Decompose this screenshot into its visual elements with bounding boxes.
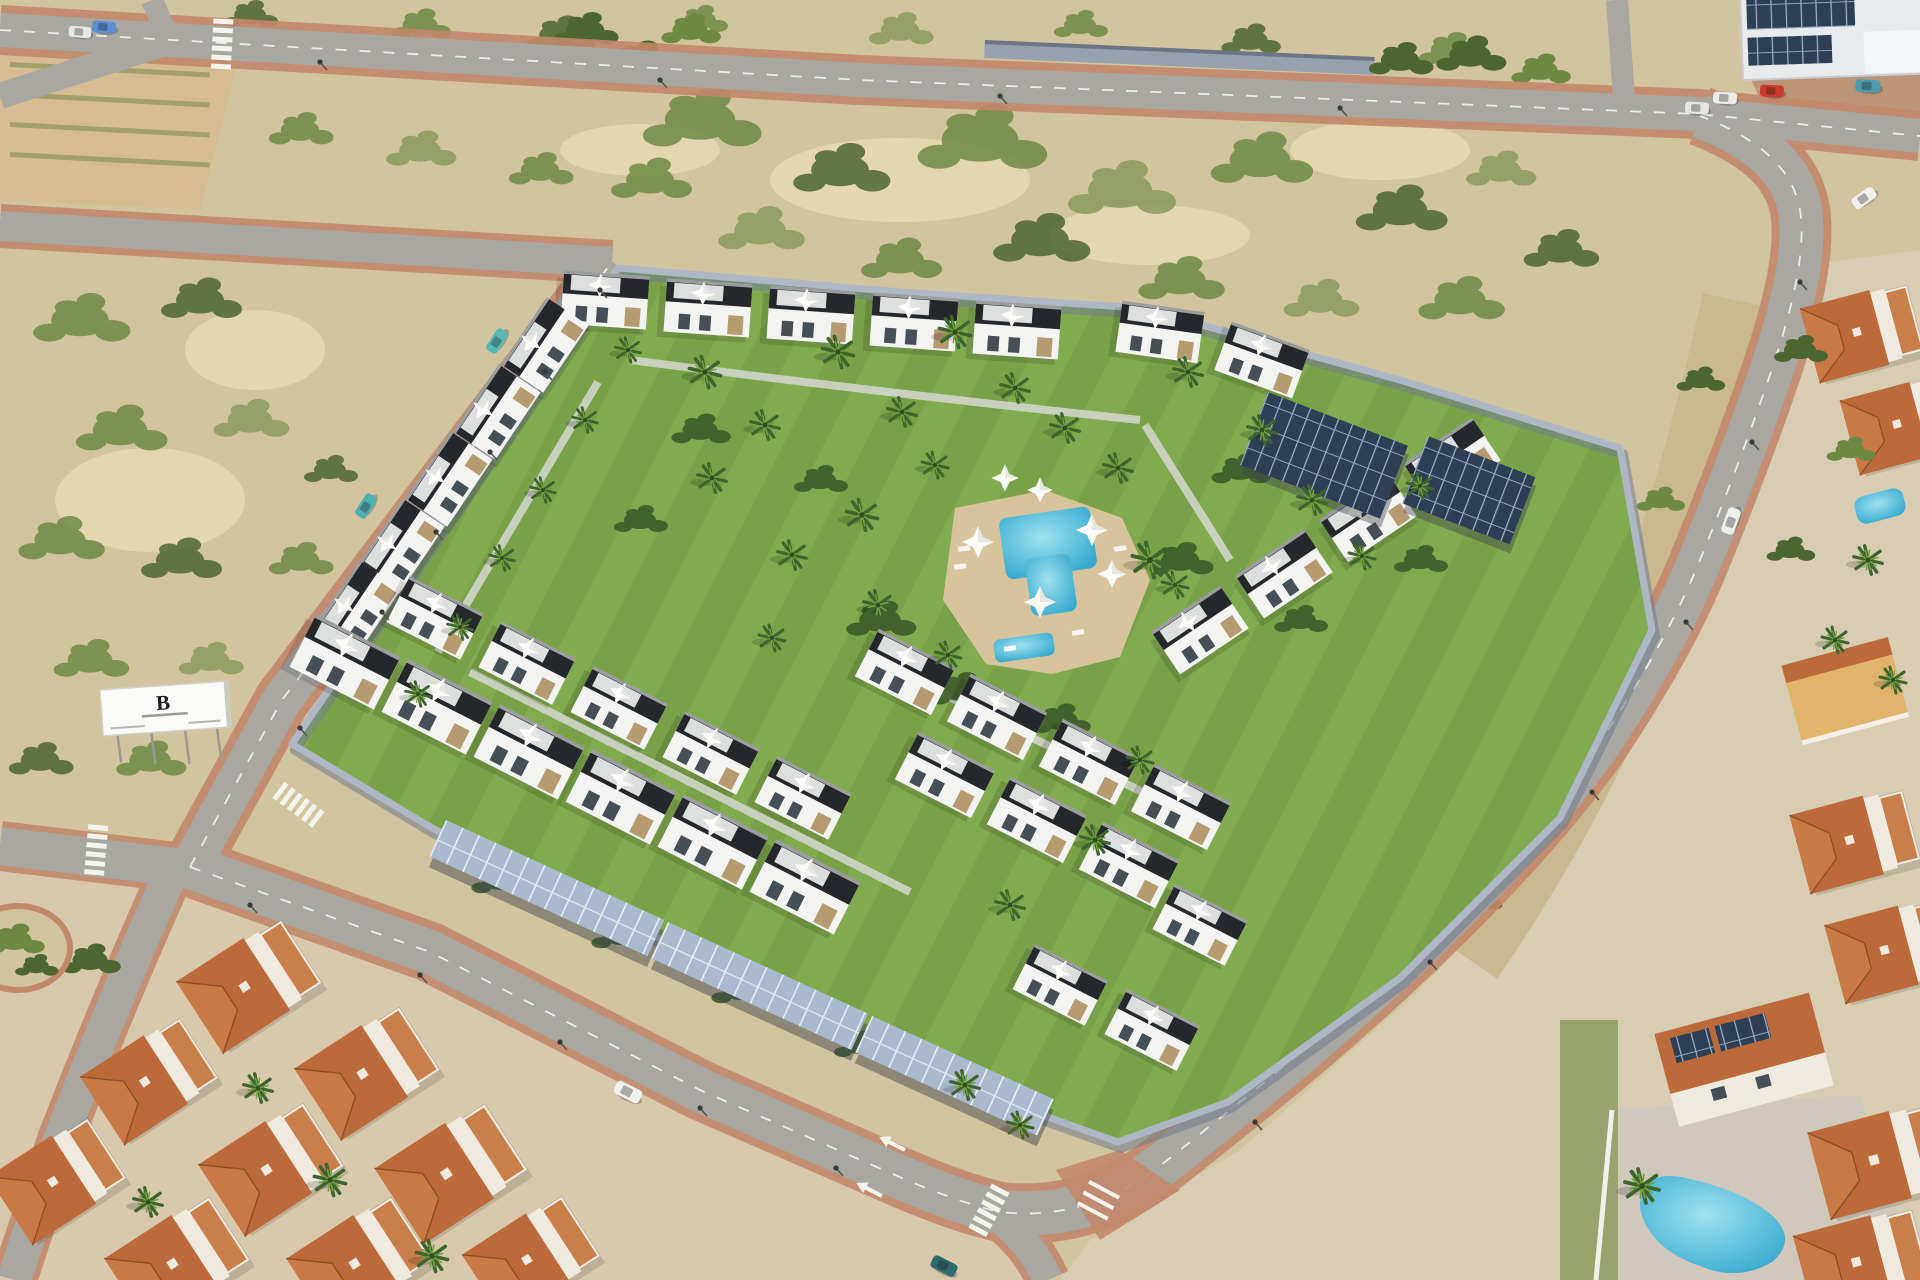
aerial-render: B xyxy=(0,0,1920,1280)
industrial-building xyxy=(1740,0,1920,80)
aerial-photo-stage: B xyxy=(0,0,1920,1280)
traffic-island xyxy=(0,906,70,990)
billboard-logo: B xyxy=(155,690,171,715)
roof-solar-array xyxy=(1746,0,1855,30)
